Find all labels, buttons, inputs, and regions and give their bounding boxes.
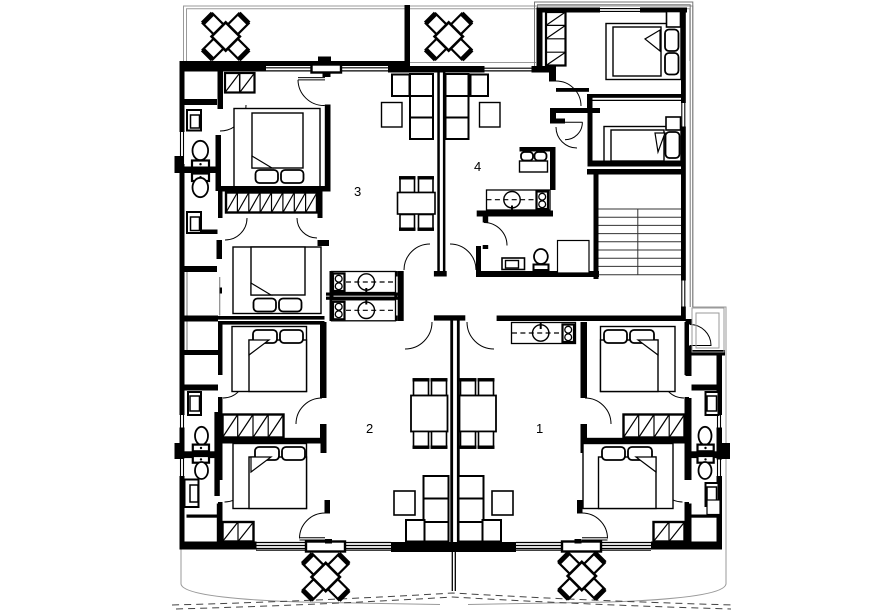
- svg-text:4: 4: [474, 159, 481, 174]
- svg-text:2: 2: [366, 421, 373, 436]
- svg-text:3: 3: [354, 184, 361, 199]
- svg-text:1: 1: [536, 421, 543, 436]
